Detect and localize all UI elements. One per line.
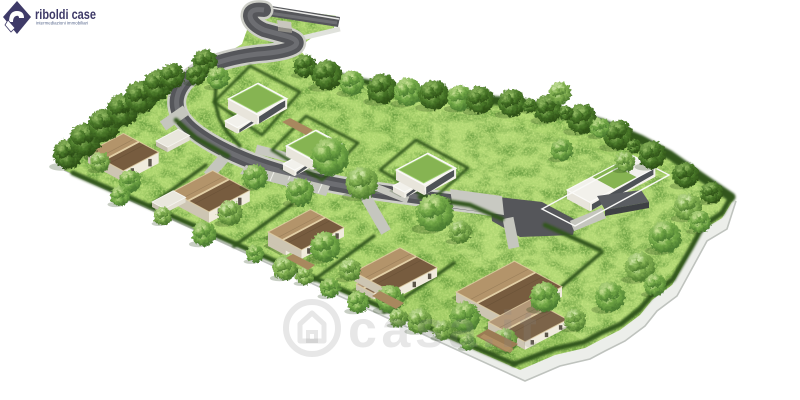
svg-text:casa.it: casa.it [348, 301, 541, 359]
svg-text:intermediazioni immobiliari: intermediazioni immobiliari [36, 21, 88, 26]
